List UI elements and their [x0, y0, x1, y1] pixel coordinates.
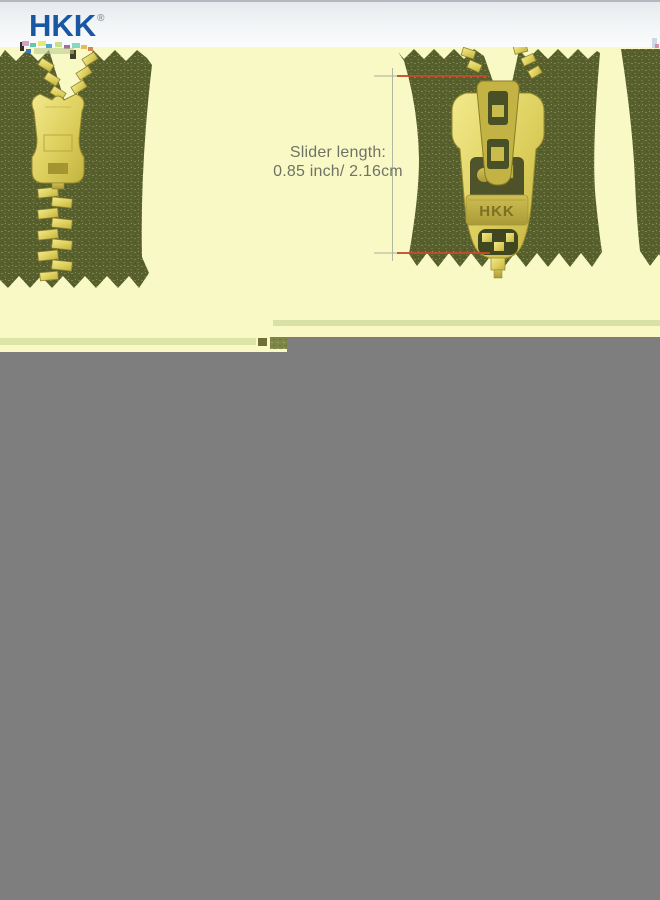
annotation-line2: 0.85 inch/ 2.16cm [258, 162, 418, 181]
slider-stamp-text: HKK [479, 203, 515, 220]
brand-logo-text: HKK [29, 8, 96, 43]
site-header: HKK® [0, 0, 660, 47]
annotation-line1: Slider length: [258, 143, 418, 162]
unloaded-image-placeholder-right [287, 337, 660, 900]
product-photo: HKK [0, 47, 660, 352]
left-zipper-image [0, 50, 152, 288]
brand-logo: HKK® [29, 8, 104, 44]
right-edge-tape [621, 49, 660, 266]
zipper-photo-graphic: HKK [0, 47, 660, 352]
unloaded-image-placeholder-left [0, 352, 287, 900]
measure-line-bottom [397, 252, 490, 254]
measure-line-top [397, 75, 487, 77]
left-zipper-slider [32, 94, 84, 189]
slider-length-annotation: Slider length: 0.85 inch/ 2.16cm [258, 143, 418, 181]
registered-trademark-symbol: ® [97, 13, 104, 24]
